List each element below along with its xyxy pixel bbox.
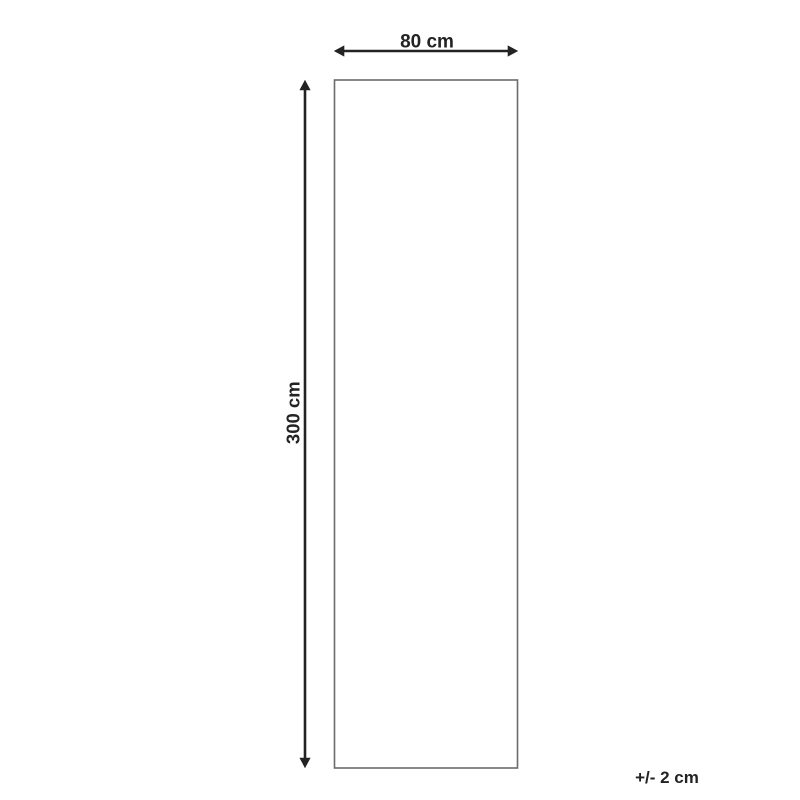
svg-text:+/- 2 cm: +/- 2 cm — [635, 768, 699, 787]
svg-text:300 cm: 300 cm — [283, 381, 304, 444]
svg-text:80 cm: 80 cm — [400, 32, 454, 53]
